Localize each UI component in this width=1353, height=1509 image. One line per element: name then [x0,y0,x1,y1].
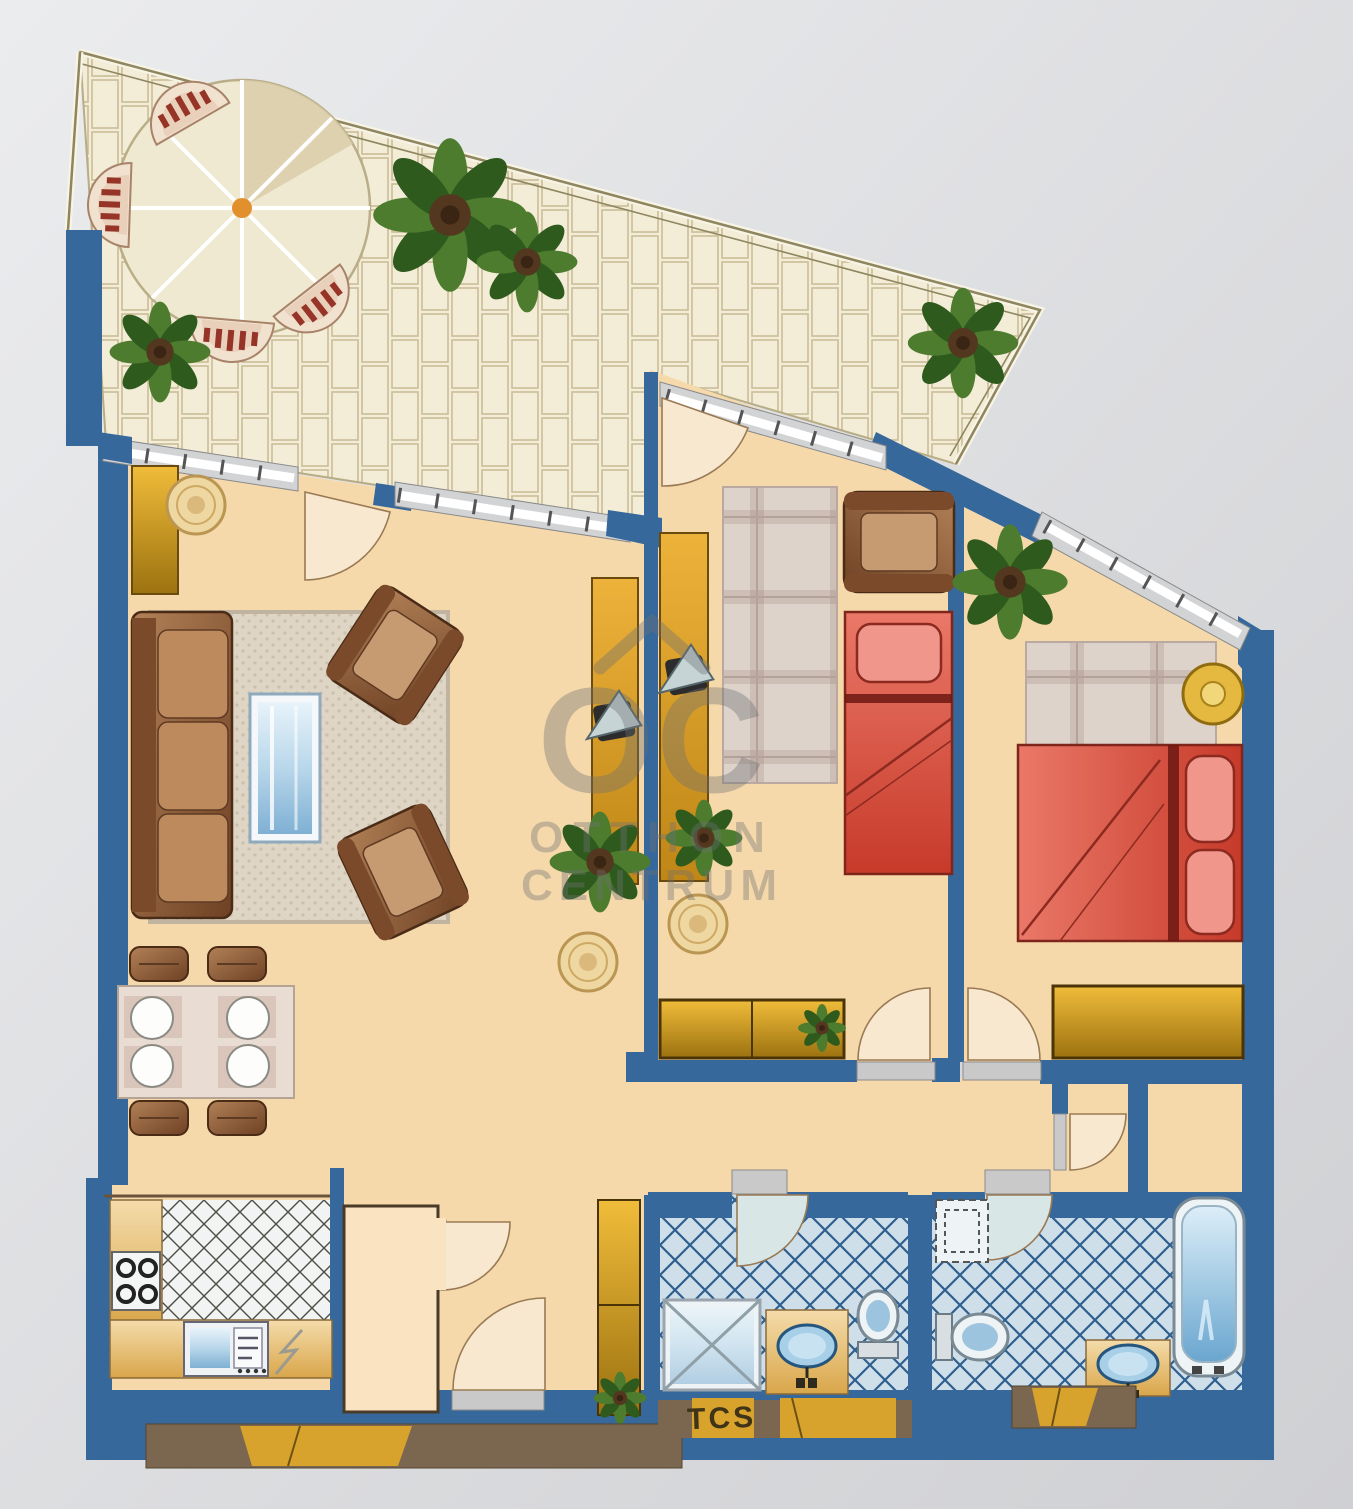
bathroom-sink [766,1310,848,1394]
entrance-door-sill [452,1390,544,1410]
door-sill [963,1062,1041,1080]
right-wall [1242,630,1274,1460]
potted-plant [594,1372,647,1425]
potted-plant [110,302,211,403]
bathtub [1174,1198,1244,1376]
hall-shelf [594,1200,647,1424]
bath-wall [648,1192,732,1218]
bathroom-window-sill [1012,1386,1136,1428]
kitchen-window-sill [146,1424,682,1468]
stove [112,1252,160,1310]
bed-pillow [1186,756,1234,842]
washing-machine [936,1200,988,1262]
armchair [844,492,954,592]
wardrobe [1053,986,1243,1058]
door-sill [985,1170,1050,1194]
watermark: OC OTTHON CENTRUM [521,622,783,910]
door-sill [732,1170,787,1194]
floor-plan-svg: TCS OC OTTHON CENTRUM [0,0,1353,1509]
stool [559,933,617,991]
watermark-monogram: OC [538,656,767,824]
bathroom1-left-wall [644,1195,660,1395]
bathroom-divider-wall [908,1195,932,1395]
umbrella-pole [232,198,252,218]
wall-stub [932,1058,960,1082]
potted-plant [798,1004,846,1052]
watermark-line2: CENTRUM [521,861,783,910]
potted-plant [477,212,578,313]
corridor-floor [626,1078,1244,1196]
dining-chair [208,1101,266,1135]
stool-gold [1183,664,1243,724]
sill-label: TCS [687,1401,757,1436]
sofa [132,612,232,918]
toilet [936,1314,1008,1360]
double-bed [1018,745,1242,941]
potted-plant [952,524,1067,639]
door-sill [1054,1114,1066,1170]
dining-chair [130,1101,188,1135]
bed-pillow [857,624,941,682]
floor-plan-photo: TCS OC OTTHON CENTRUM [0,0,1353,1509]
single-bed [845,612,952,874]
cabinet [132,466,178,594]
bed-pillow [1186,850,1234,934]
bedroom2-hall-wall [1040,1060,1245,1084]
dining-chair [208,947,266,981]
door-sill [857,1062,935,1080]
kitchen-sink-appliance [184,1322,268,1376]
potted-plant [908,288,1018,398]
hall-window-sill: TCS [658,1398,912,1438]
stool [167,476,225,534]
shower [664,1300,760,1390]
coffee-table [250,694,320,842]
bedroom1-hall-wall [626,1060,857,1082]
dining-chair [130,947,188,981]
closet-door-gap [436,1218,446,1290]
toilet [858,1291,898,1358]
kitchen-floor [162,1200,330,1320]
terrace-wall [66,230,102,446]
watermark-line1: OTTHON [529,813,775,862]
vestibule-wall [1052,1084,1068,1114]
storage-closet [344,1206,438,1412]
vestibule-wall [1128,1084,1148,1194]
